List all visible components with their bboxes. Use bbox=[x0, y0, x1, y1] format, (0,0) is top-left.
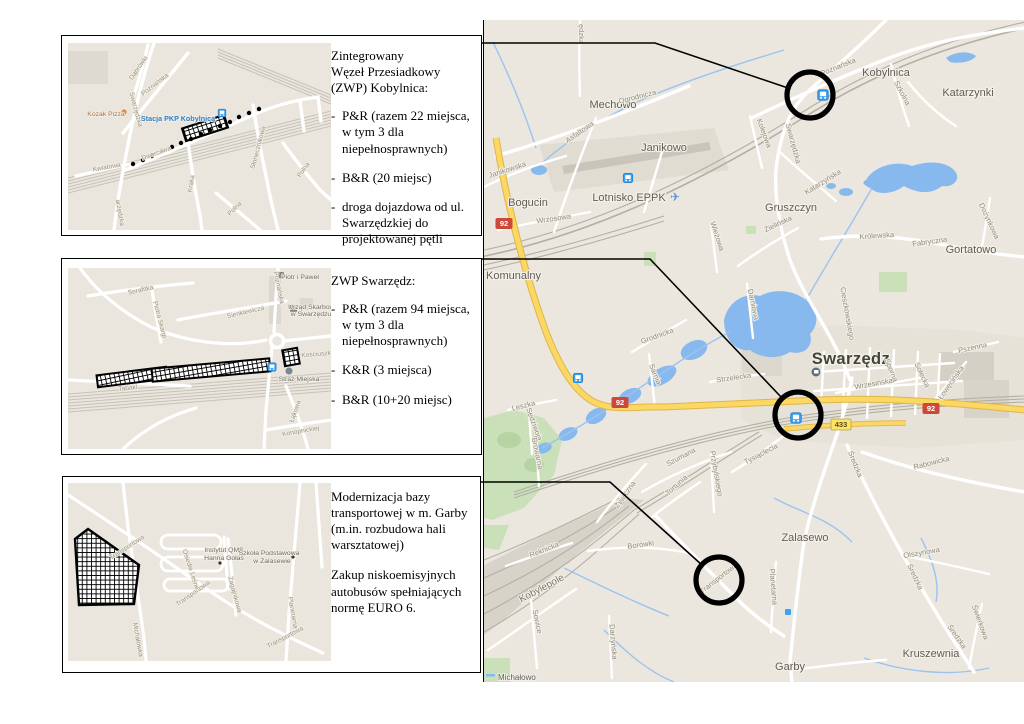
transit-stop-icon bbox=[785, 609, 791, 615]
street-label: ędzka bbox=[577, 24, 586, 45]
bullet-item: -droga dojazdowa od ul. Swarzędzkiej do … bbox=[331, 199, 479, 247]
smalltown-label: Michałowo bbox=[498, 673, 536, 682]
panel-title: Zintegrowany Węzeł Przesiadkowy (ZWP) Ko… bbox=[331, 48, 479, 96]
title-line: ZWP Swarzędz: bbox=[331, 273, 479, 289]
title-line: Zintegrowany bbox=[331, 48, 479, 64]
paragraph-list: Modernizacja bazy transportowej w m. Gar… bbox=[331, 489, 479, 616]
panel-title: ZWP Swarzędz: bbox=[331, 273, 479, 289]
train-station-icon bbox=[623, 173, 632, 182]
buildings bbox=[68, 51, 108, 84]
town-label: Gruszczyn bbox=[765, 202, 817, 214]
train-station-icon bbox=[791, 413, 801, 423]
train-station-icon bbox=[573, 373, 582, 382]
bullet-marker: - bbox=[331, 199, 342, 247]
title-line: (ZWP) Kobylnica: bbox=[331, 80, 479, 96]
ipoi-label: Urząd Skarbowy bbox=[288, 304, 331, 311]
ipoi-label: w Zalasewie bbox=[252, 558, 291, 565]
roundabout bbox=[271, 335, 284, 348]
shield92-label: 92 bbox=[500, 219, 508, 228]
info-panel-swarzedz: SerafitkaSienkiewiczaPiotra SkargiPoznań… bbox=[61, 258, 482, 455]
town-label: Zalasewo bbox=[781, 532, 828, 544]
bullet-marker: - bbox=[331, 108, 342, 156]
bullet-item: -B&R (10+20 miejsc) bbox=[331, 392, 479, 408]
town-label: Gortatowo bbox=[946, 244, 997, 256]
title-line: Węzeł Przesiadkowy bbox=[331, 64, 479, 80]
ipoi-label: Szkoła Podstawowa bbox=[239, 550, 300, 557]
inset-map-kobylnica: DąbrówkiPoznańskaSwarzędzkaarzędzkaKwiat… bbox=[68, 43, 331, 230]
info-panel-kobylnica: DąbrówkiPoznańskaSwarzędzkaarzędzkaKwiat… bbox=[61, 35, 482, 236]
bullet-marker: - bbox=[331, 362, 342, 378]
guard-icon bbox=[286, 368, 293, 375]
bullet-item: -B&R (20 miejsc) bbox=[331, 170, 479, 186]
city-label: Swarzędz bbox=[812, 350, 890, 368]
bullet-list: -P&R (razem 22 miejsca, w tym 3 dla niep… bbox=[331, 108, 479, 247]
shield92-label: 92 bbox=[616, 398, 624, 407]
poi-icon-glyph bbox=[814, 370, 819, 374]
town-label: Garby bbox=[775, 661, 805, 673]
town-label: Janikowo bbox=[641, 142, 687, 154]
bullet-marker: - bbox=[331, 392, 342, 408]
panel-text-kobylnica: Zintegrowany Węzeł Przesiadkowy (ZWP) Ko… bbox=[331, 48, 479, 247]
town-label: Lotnisko EPPK bbox=[592, 192, 666, 204]
town-label: Bogucin bbox=[508, 197, 548, 209]
airport-icon: ✈ bbox=[670, 190, 680, 204]
town-label: Kobylnica bbox=[862, 67, 911, 79]
inset-map-swarzedz: SerafitkaSienkiewiczaPiotra SkargiPoznań… bbox=[68, 268, 331, 449]
para-item: Zakup niskoemisyjnych autobusów spełniaj… bbox=[331, 567, 479, 615]
bullet-marker: - bbox=[331, 301, 342, 349]
bullet-item: -K&R (3 miejsca) bbox=[331, 362, 479, 378]
train-station-icon bbox=[268, 363, 276, 371]
ipoi-label: Piotr i Paweł bbox=[281, 274, 319, 281]
town-label: Kruszewnia bbox=[903, 648, 961, 660]
overview-map: ✈ MechowoJanikowoBogucinLotnisko EPPKKob… bbox=[483, 20, 1024, 682]
bullet-list: -P&R (razem 94 miejsca, w tym 3 dla niep… bbox=[331, 301, 479, 408]
panel-text-garby: Modernizacja bazy transportowej w m. Gar… bbox=[331, 489, 479, 616]
info-panel-garby: TransportowaTransportowaTransportowaMich… bbox=[62, 476, 481, 673]
townL-label: Komunalny bbox=[486, 270, 542, 282]
overview-map-canvas: ✈ MechowoJanikowoBogucinLotnisko EPPKKob… bbox=[484, 20, 1024, 682]
para-item: Modernizacja bazy transportowej w m. Gar… bbox=[331, 489, 479, 553]
shield92-label: 92 bbox=[927, 404, 935, 413]
ipoi-label: w Swarzędzu bbox=[290, 311, 331, 318]
train-station-icon bbox=[818, 90, 828, 100]
istation-label: Stacja PKP Kobylnica bbox=[141, 114, 216, 123]
ipoi-orange-label: Kozak Pizza bbox=[87, 111, 125, 118]
ipoi-label: Straż Miejska bbox=[279, 376, 320, 383]
bullet-item: -P&R (razem 94 miejsca, w tym 3 dla niep… bbox=[331, 301, 479, 349]
inset-map-garby: TransportowaTransportowaTransportowaMich… bbox=[68, 483, 331, 661]
bullet-marker: - bbox=[331, 170, 342, 186]
bullet-item: -P&R (razem 22 miejsca, w tym 3 dla niep… bbox=[331, 108, 479, 156]
panel-text-swarzedz: ZWP Swarzędz: -P&R (razem 94 miejsca, w … bbox=[331, 273, 479, 408]
stream-legend-dash bbox=[486, 674, 495, 677]
train-station-icon bbox=[218, 109, 226, 117]
shield433-label: 433 bbox=[835, 420, 848, 429]
town-label: Katarzynki bbox=[942, 87, 993, 99]
